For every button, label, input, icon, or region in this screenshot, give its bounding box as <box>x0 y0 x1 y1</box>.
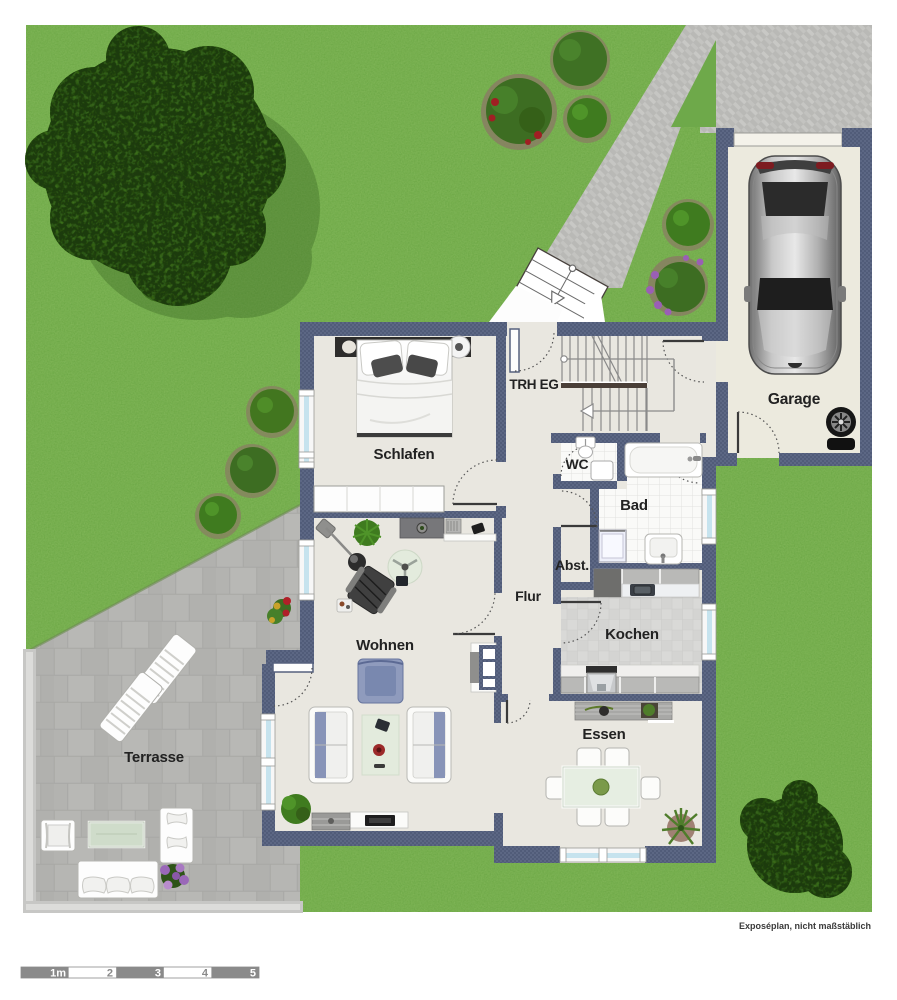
svg-text:Flur: Flur <box>515 588 541 604</box>
svg-text:4: 4 <box>202 968 209 980</box>
svg-text:Bad: Bad <box>620 497 648 514</box>
svg-text:Abst.: Abst. <box>555 557 589 573</box>
svg-text:3: 3 <box>155 968 161 980</box>
svg-text:WC: WC <box>566 456 589 472</box>
svg-text:Terrasse: Terrasse <box>124 749 184 766</box>
svg-text:1m: 1m <box>50 968 66 980</box>
svg-text:2: 2 <box>107 968 113 980</box>
svg-text:Garage: Garage <box>768 391 821 408</box>
svg-text:Essen: Essen <box>582 726 625 743</box>
svg-text:Schlafen: Schlafen <box>374 446 435 463</box>
svg-text:Kochen: Kochen <box>605 626 659 643</box>
svg-text:Wohnen: Wohnen <box>356 637 414 654</box>
svg-text:TRH EG: TRH EG <box>509 377 558 392</box>
svg-text:Exposéplan, nicht maßstäblich: Exposéplan, nicht maßstäblich <box>739 921 871 931</box>
svg-text:5: 5 <box>250 968 256 980</box>
